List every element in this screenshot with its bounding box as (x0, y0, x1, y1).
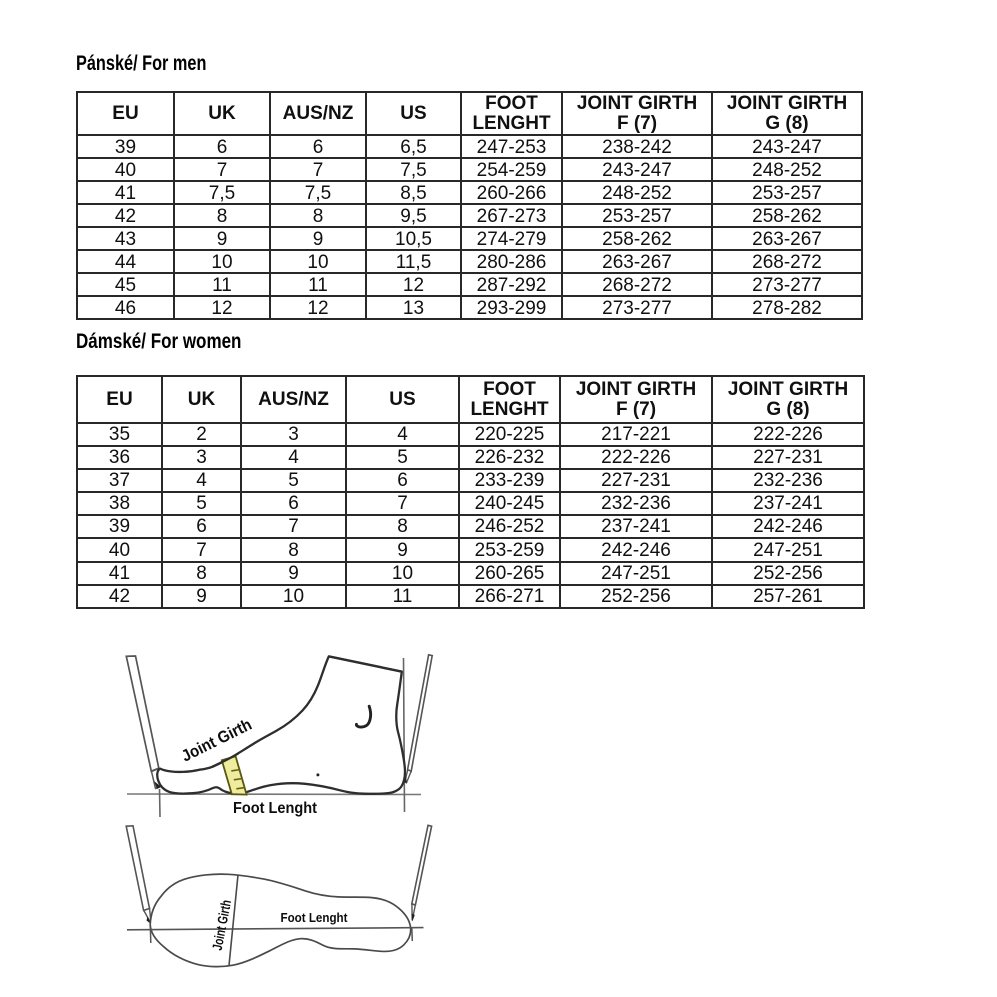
svg-text:Foot Lenght: Foot Lenght (281, 910, 349, 925)
svg-text:Foot Lenght: Foot Lenght (233, 800, 317, 817)
